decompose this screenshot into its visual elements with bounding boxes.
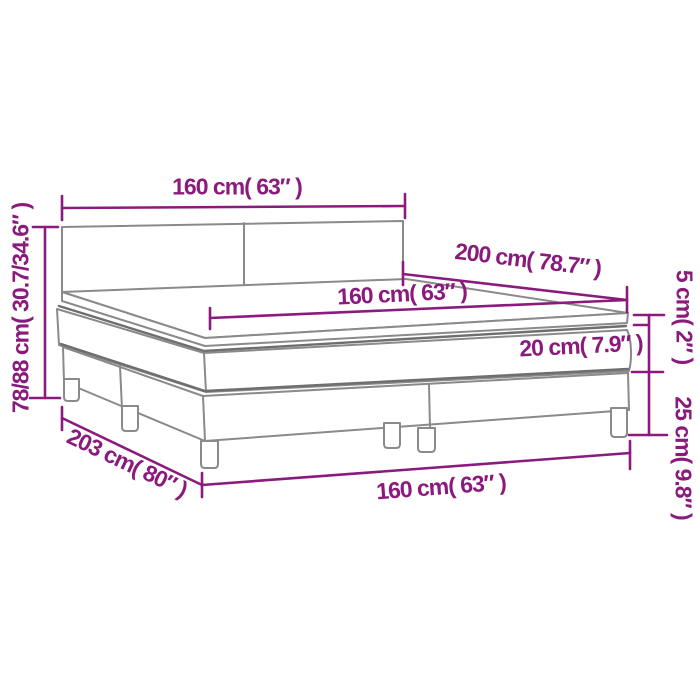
bed-leg	[122, 406, 138, 431]
bed-leg	[201, 441, 218, 468]
bed-leg	[418, 428, 435, 452]
bed-leg	[64, 379, 79, 401]
bed-leg	[611, 408, 627, 437]
dim-headboard-width-label: 160 cm( 63″ )	[172, 174, 302, 201]
bed-leg	[384, 423, 400, 448]
dimension-diagram: 160 cm( 63″ ) 200 cm( 78.7″ ) 160 cm( 63…	[0, 0, 700, 700]
dim-total-height-lines	[30, 227, 60, 398]
dim-base-height-label: 25 cm( 9.8″ )	[670, 396, 697, 519]
dim-topper-height-label: 5 cm( 2″ )	[671, 270, 698, 364]
dim-total-height-label: 78/88 cm( 30.7/34.6″ )	[8, 203, 35, 413]
